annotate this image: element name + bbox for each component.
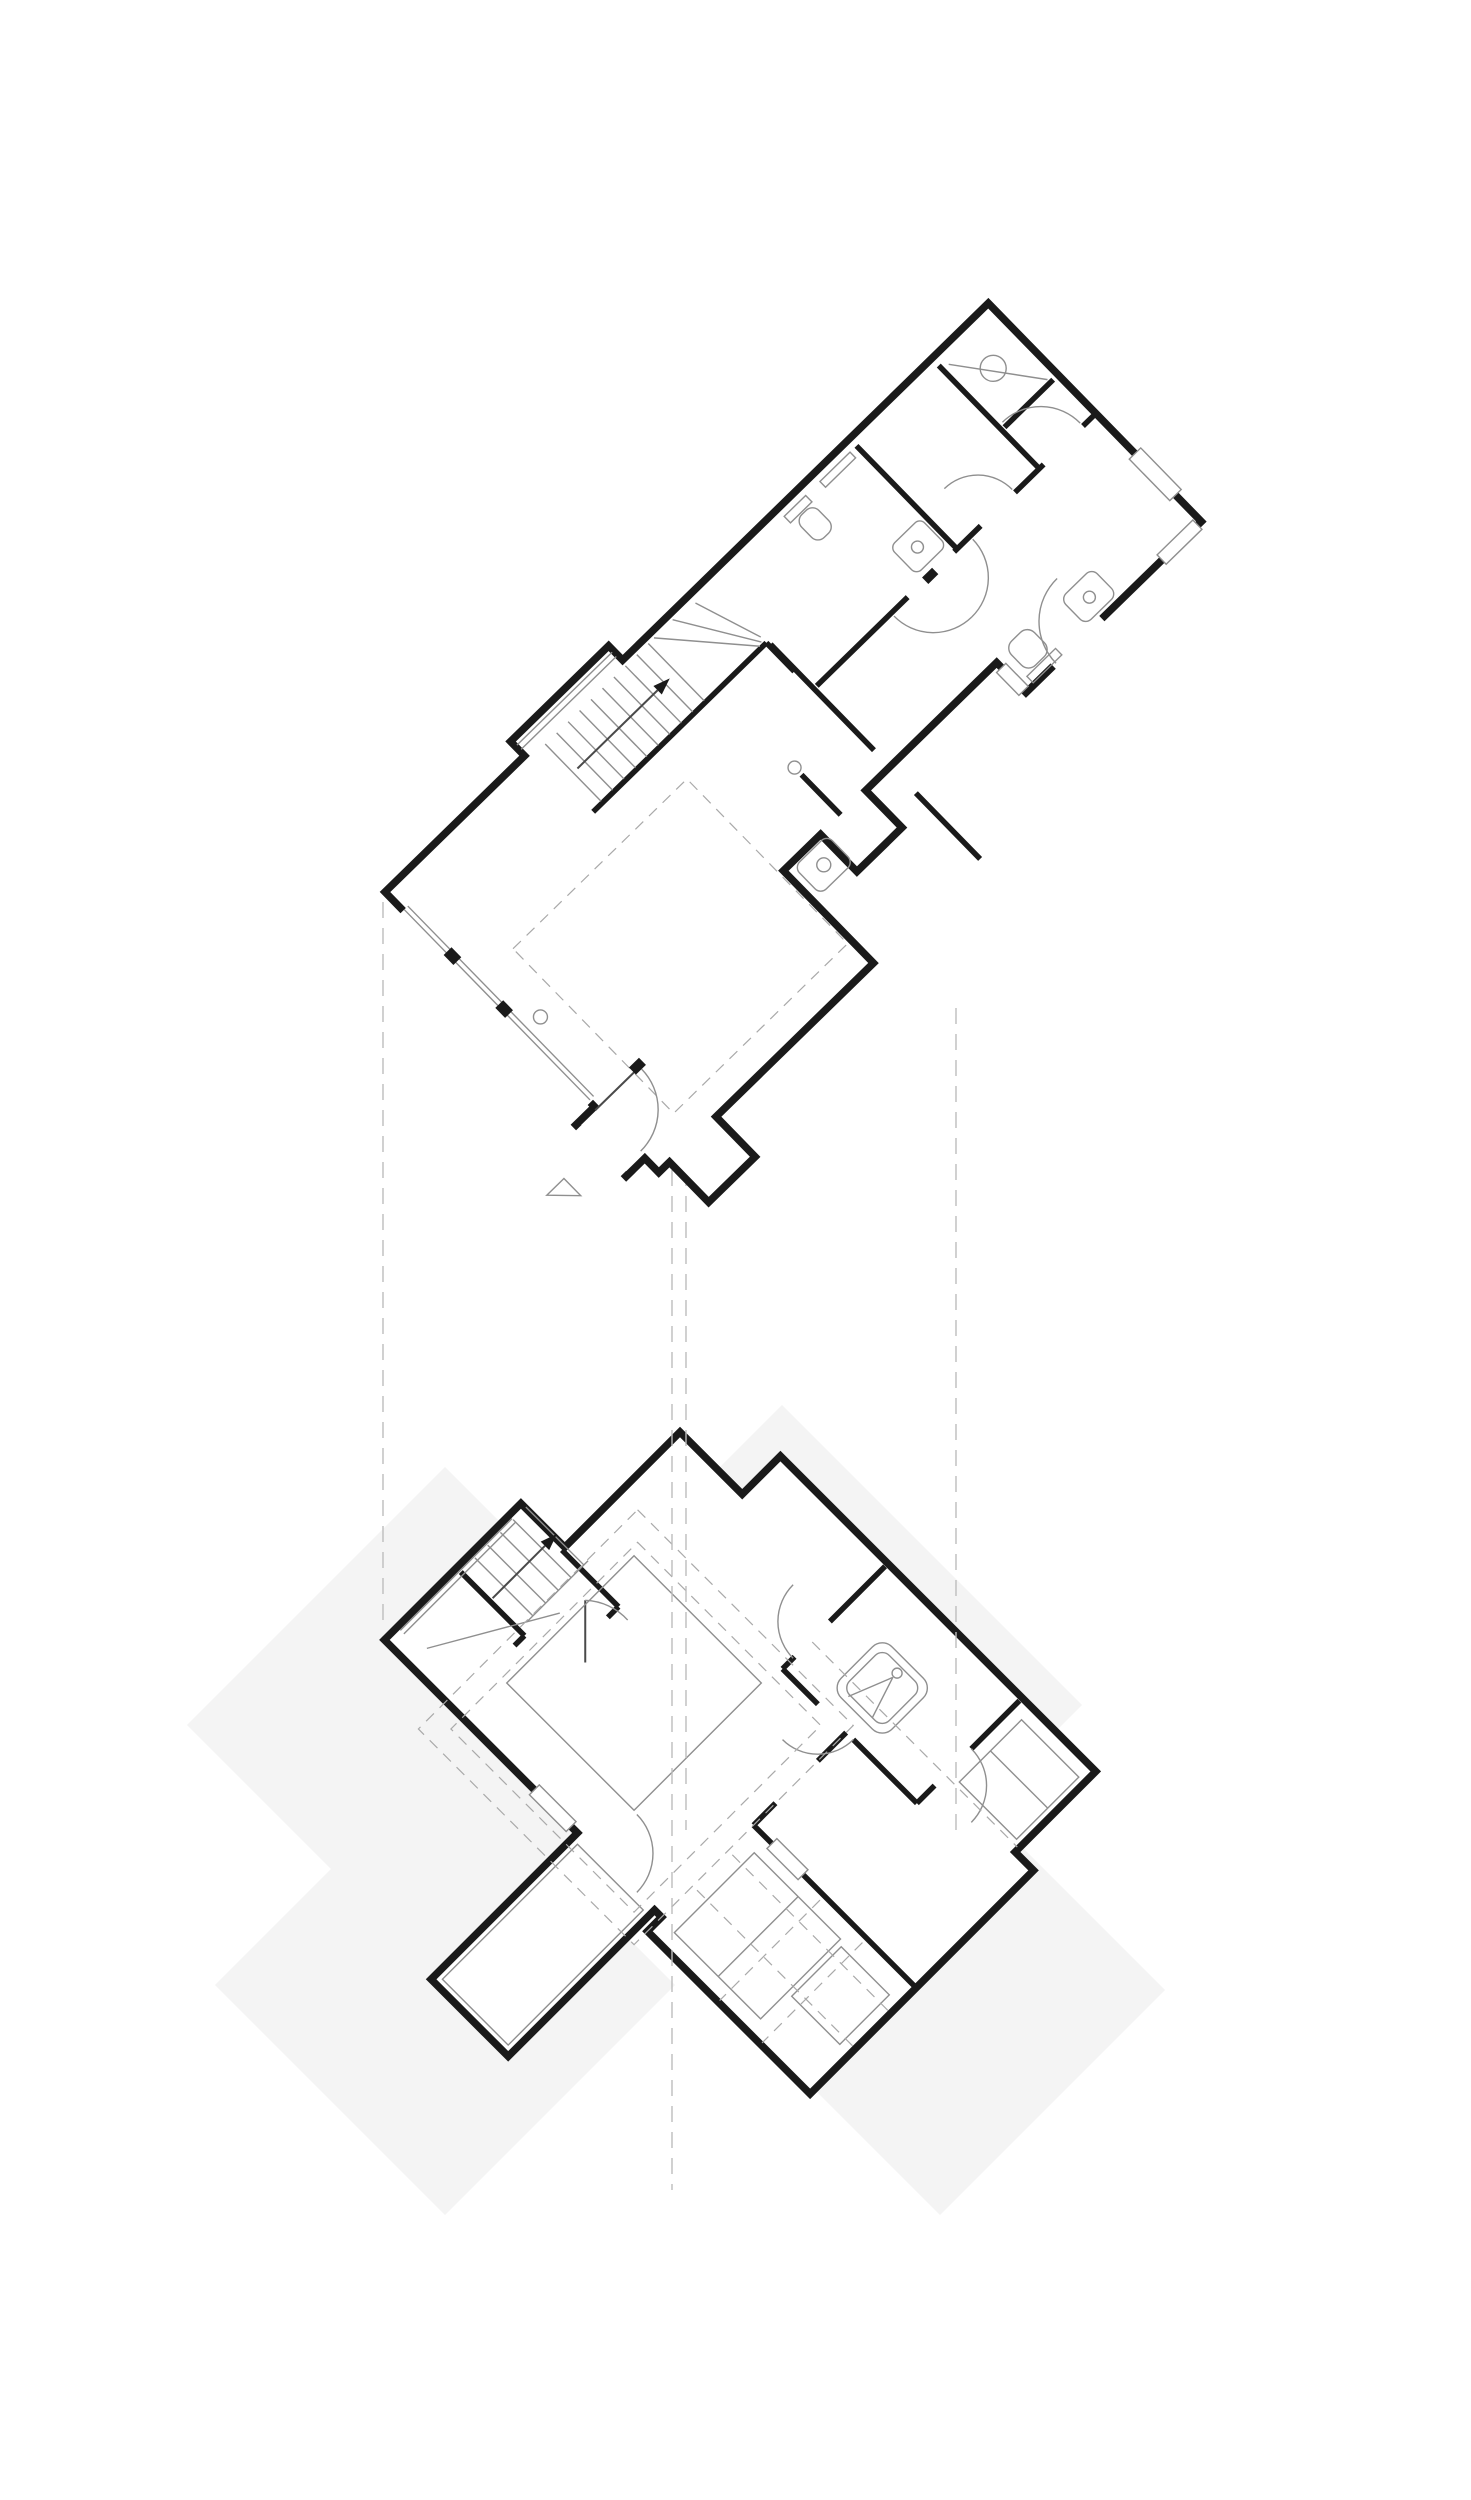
north-triangle-symbol [547,1178,581,1212]
upper-floor-plan [302,283,1307,1279]
exterior-wall-outline [352,289,1301,1231]
washbasin-circle [814,855,834,875]
two-floor-plan-axonometric-drawing [0,0,1471,2500]
architectural-drawing-page [0,0,1471,2500]
interior-wall [916,793,980,859]
